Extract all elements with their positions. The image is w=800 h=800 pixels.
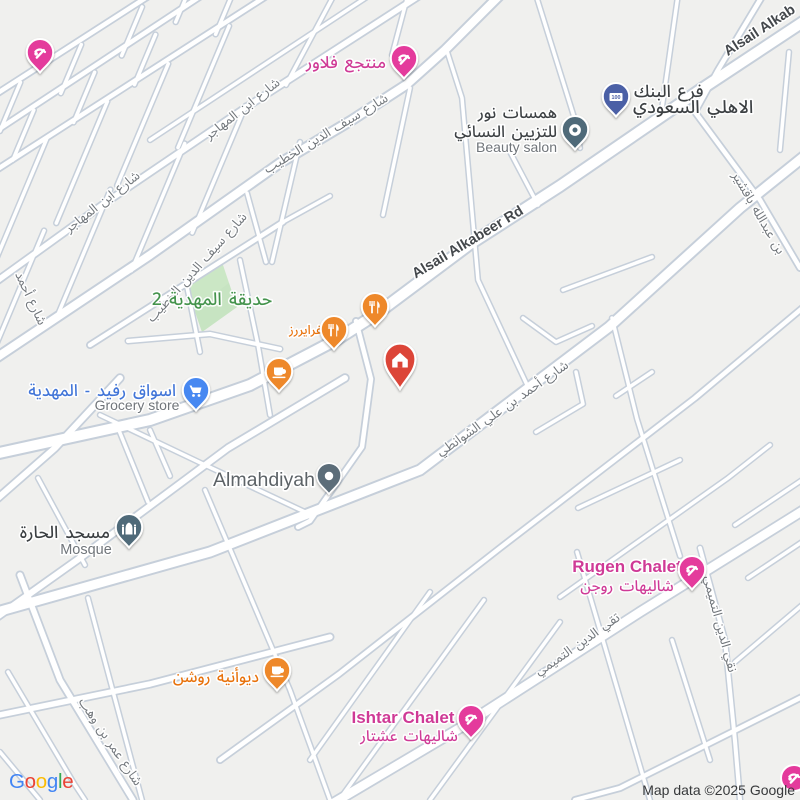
- svg-text:Mosque: Mosque: [60, 542, 112, 558]
- svg-text:Google: Google: [9, 770, 73, 793]
- svg-text:Grocery store: Grocery store: [95, 397, 180, 413]
- svg-text:Beauty salon: Beauty salon: [476, 139, 557, 155]
- svg-text:Rugen Chalet: Rugen Chalet: [572, 557, 682, 576]
- svg-text:Map data ©2025 Google: Map data ©2025 Google: [642, 782, 795, 798]
- svg-text:100: 100: [612, 95, 621, 101]
- svg-text:Ishtar Chalet: Ishtar Chalet: [352, 708, 455, 727]
- svg-text:Almahdiyah: Almahdiyah: [213, 469, 315, 491]
